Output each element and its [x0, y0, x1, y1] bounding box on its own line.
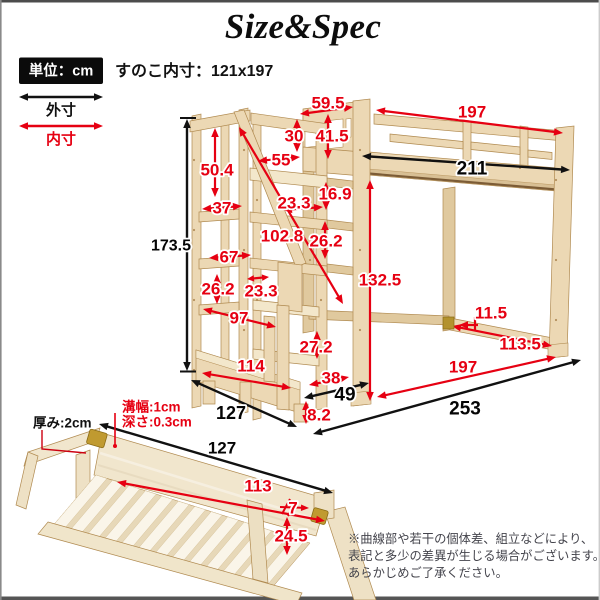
svg-text:11.5: 11.5 [475, 304, 507, 323]
svg-text:114: 114 [237, 357, 265, 376]
svg-text:すのこ内寸：121x197: すのこ内寸：121x197 [115, 61, 273, 80]
svg-text:197: 197 [449, 358, 477, 377]
svg-text:深さ:0.3cm: 深さ:0.3cm [122, 414, 192, 430]
svg-text:あらかじめご了承ください。: あらかじめご了承ください。 [348, 565, 508, 580]
svg-text:113.5: 113.5 [499, 335, 541, 354]
svg-text:7: 7 [288, 499, 297, 518]
svg-text:単位：cm: 単位：cm [29, 62, 93, 80]
svg-text:30: 30 [285, 127, 304, 146]
svg-text:Size&Spec: Size&Spec [225, 7, 381, 46]
svg-text:38: 38 [322, 369, 341, 388]
svg-text:173.5: 173.5 [151, 238, 191, 255]
svg-text:127: 127 [216, 403, 246, 423]
svg-text:23.3: 23.3 [244, 282, 277, 301]
svg-text:132.5: 132.5 [359, 271, 402, 290]
svg-text:253: 253 [449, 399, 481, 420]
svg-text:8.2: 8.2 [307, 406, 331, 425]
svg-text:内寸: 内寸 [46, 130, 76, 148]
svg-text:59.5: 59.5 [311, 94, 344, 113]
svg-text:外寸: 外寸 [45, 101, 76, 119]
svg-text:表記と多少の差異が生じる場合がございます。: 表記と多少の差異が生じる場合がございます。 [348, 548, 600, 563]
svg-text:16.9: 16.9 [318, 185, 351, 204]
svg-text:23.3: 23.3 [277, 194, 310, 213]
svg-text:55: 55 [272, 151, 291, 170]
svg-text:102.8: 102.8 [261, 227, 304, 246]
svg-text:41.5: 41.5 [315, 127, 348, 146]
svg-text:37: 37 [213, 199, 232, 218]
svg-text:127: 127 [208, 439, 236, 458]
svg-text:※曲線部や若干の個体差、組立などにより、: ※曲線部や若干の個体差、組立などにより、 [348, 531, 593, 546]
svg-text:211: 211 [457, 159, 488, 180]
svg-text:26.2: 26.2 [309, 232, 342, 251]
svg-text:27.2: 27.2 [299, 338, 332, 357]
svg-text:26.2: 26.2 [201, 280, 234, 299]
svg-text:50.4: 50.4 [200, 161, 234, 180]
svg-text:49: 49 [334, 385, 355, 406]
svg-text:197: 197 [458, 103, 486, 122]
svg-text:厚み:2cm: 厚み:2cm [33, 416, 92, 431]
svg-text:97: 97 [230, 309, 249, 328]
svg-text:24.5: 24.5 [274, 527, 307, 546]
svg-text:67: 67 [220, 248, 239, 267]
svg-text:113: 113 [244, 477, 271, 496]
svg-text:溝幅:1cm: 溝幅:1cm [122, 399, 181, 415]
